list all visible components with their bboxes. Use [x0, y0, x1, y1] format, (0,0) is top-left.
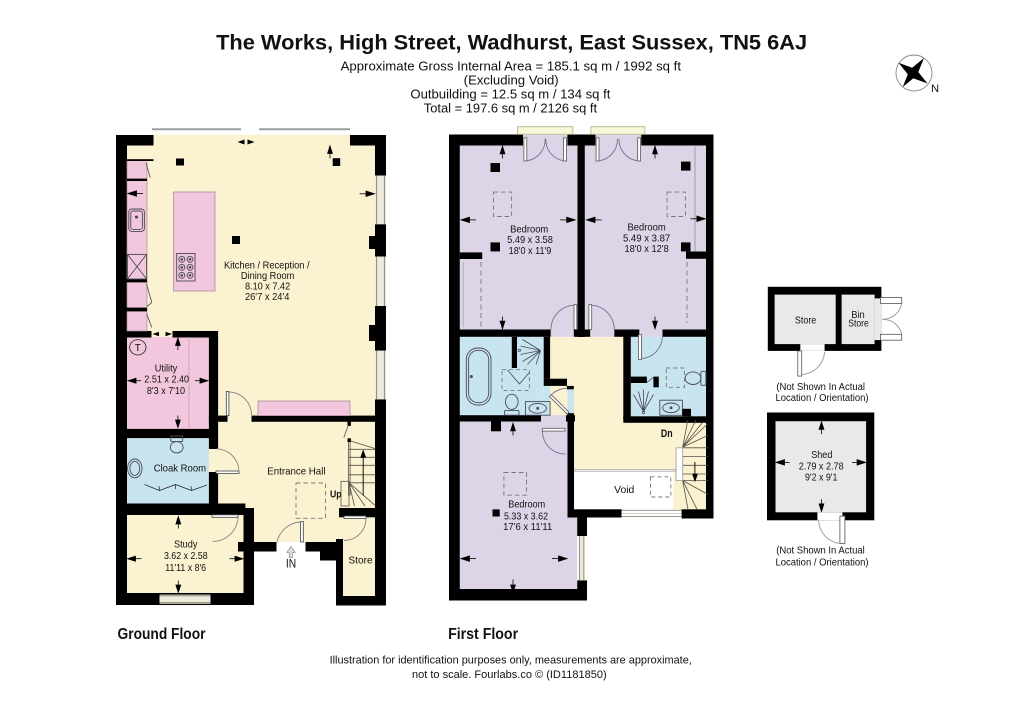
svg-text:Study: Study — [174, 540, 198, 551]
svg-text:Dn: Dn — [661, 428, 673, 440]
svg-text:Illustration for identificatio: Illustration for identification purposes… — [330, 655, 692, 667]
svg-text:Bedroom: Bedroom — [628, 223, 666, 234]
svg-text:5.49 x 3.58: 5.49 x 3.58 — [507, 235, 553, 246]
svg-text:Store: Store — [348, 556, 373, 567]
svg-text:IN: IN — [286, 558, 296, 571]
svg-text:2.79 x 2.78: 2.79 x 2.78 — [799, 461, 844, 472]
svg-text:(Not Shown In Actual: (Not Shown In Actual — [776, 382, 865, 393]
svg-text:Bedroom: Bedroom — [508, 499, 545, 510]
svg-text:Location / Orientation): Location / Orientation) — [775, 393, 868, 404]
svg-text:(Excluding Void): (Excluding Void) — [464, 72, 559, 87]
svg-text:9'2 x 9'1: 9'2 x 9'1 — [805, 473, 838, 484]
svg-text:Utility: Utility — [155, 364, 178, 375]
svg-text:Store: Store — [795, 316, 817, 327]
svg-text:8.10 x 7.42: 8.10 x 7.42 — [245, 282, 291, 293]
svg-text:3.62 x 2.58: 3.62 x 2.58 — [164, 551, 208, 562]
svg-text:Up: Up — [330, 490, 342, 501]
svg-text:Dining Room: Dining Room — [241, 271, 294, 282]
svg-text:18'0 x 11'9: 18'0 x 11'9 — [509, 246, 552, 257]
svg-text:T: T — [135, 343, 141, 354]
svg-text:Outbuilding = 12.5 sq m / 134: Outbuilding = 12.5 sq m / 134 sq ft — [410, 86, 610, 101]
svg-text:5.33 x 3.62: 5.33 x 3.62 — [504, 512, 548, 523]
svg-text:26'7 x 24'4: 26'7 x 24'4 — [245, 292, 290, 303]
svg-text:First Floor: First Floor — [448, 626, 518, 643]
svg-text:Approximate Gross Internal Are: Approximate Gross Internal Area = 185.1 … — [341, 58, 682, 73]
svg-text:Cloak Room: Cloak Room — [154, 463, 206, 474]
svg-text:The Works, High Street, Wadhur: The Works, High Street, Wadhurst, East S… — [216, 32, 807, 55]
svg-text:(Not Shown In Actual: (Not Shown In Actual — [776, 546, 865, 557]
svg-text:8'3 x 7'10: 8'3 x 7'10 — [147, 386, 185, 397]
svg-text:N: N — [931, 83, 939, 95]
svg-text:Shed: Shed — [811, 450, 832, 461]
svg-text:Ground Floor: Ground Floor — [118, 626, 206, 643]
svg-text:18'0 x 12'8: 18'0 x 12'8 — [624, 244, 669, 255]
svg-text:not to scale. Fourlabs.co © (I: not to scale. Fourlabs.co © (ID1181850) — [412, 669, 607, 681]
svg-text:Void: Void — [614, 485, 635, 496]
svg-text:5.49 x 3.87: 5.49 x 3.87 — [623, 234, 671, 245]
svg-text:Store: Store — [848, 319, 869, 330]
svg-text:Entrance Hall: Entrance Hall — [267, 466, 325, 477]
svg-text:17'6 x 11'11: 17'6 x 11'11 — [503, 522, 552, 533]
svg-text:Bedroom: Bedroom — [510, 224, 548, 235]
svg-text:Kitchen / Reception /: Kitchen / Reception / — [224, 261, 310, 272]
svg-text:Total = 197.6 sq m / 2126 sq f: Total = 197.6 sq m / 2126 sq ft — [424, 100, 598, 115]
svg-text:2.51 x 2.40: 2.51 x 2.40 — [144, 374, 189, 385]
svg-text:Location / Orientation): Location / Orientation) — [775, 557, 868, 568]
svg-text:11'11 x 8'6: 11'11 x 8'6 — [165, 563, 206, 574]
